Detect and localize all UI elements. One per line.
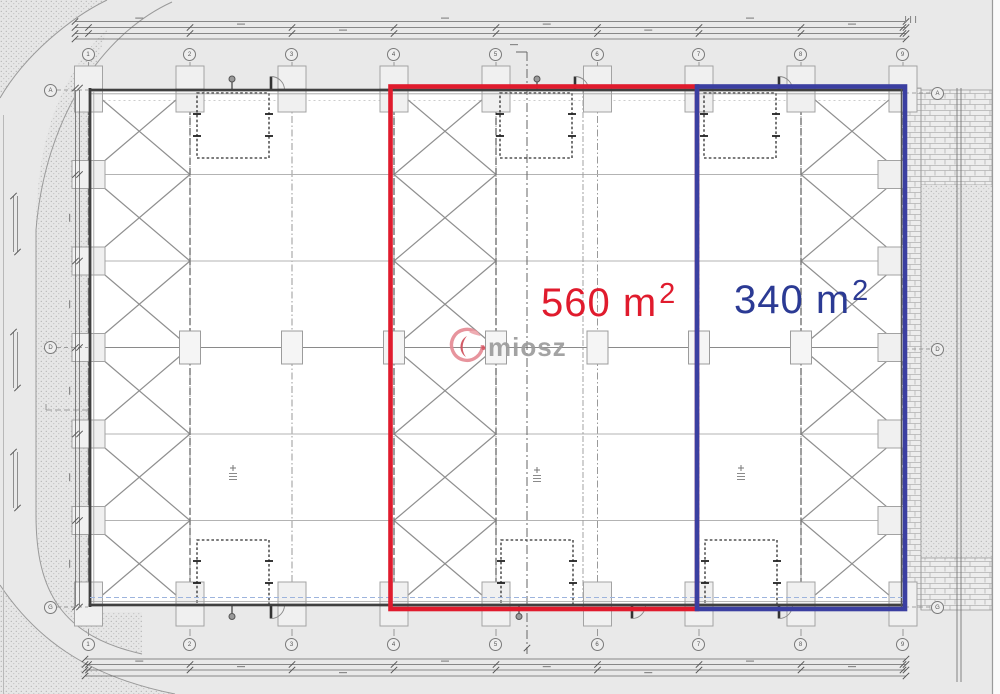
grid-marker-top-3: 3	[285, 48, 298, 61]
grid-marker-left-D: D	[44, 341, 57, 354]
grid-marker-bottom-2: 2	[183, 638, 196, 651]
grid-marker-bottom-7: 7	[692, 638, 705, 651]
grid-marker-top-2: 2	[183, 48, 196, 61]
grid-marker-left-G: G	[44, 601, 57, 614]
red-area-value: 560 m	[541, 281, 657, 325]
grid-marker-left-A: A	[44, 84, 57, 97]
red-area-sup: 2	[659, 278, 676, 310]
grid-marker-bottom-1: 1	[82, 638, 95, 651]
grid-marker-bottom-8: 8	[794, 638, 807, 651]
grid-marker-bottom-9: 9	[896, 638, 909, 651]
blue-area-value: 340 m	[734, 278, 850, 322]
floor-plan-viewport: 560 m2 340 m2 miosz 123456789123456789AD…	[0, 0, 1000, 694]
grid-marker-bottom-4: 4	[387, 638, 400, 651]
grid-marker-top-1: 1	[82, 48, 95, 61]
grid-marker-bottom-5: 5	[489, 638, 502, 651]
grid-marker-right-A: A	[931, 87, 944, 100]
grid-marker-bottom-3: 3	[285, 638, 298, 651]
grid-marker-top-6: 6	[591, 48, 604, 61]
red-area-label: 560 m2	[541, 281, 676, 326]
grid-marker-top-8: 8	[794, 48, 807, 61]
grid-marker-top-5: 5	[489, 48, 502, 61]
grid-marker-top-9: 9	[896, 48, 909, 61]
grid-marker-right-G: G	[931, 601, 944, 614]
floor-plan-canvas	[0, 0, 1000, 694]
grid-marker-right-D: D	[931, 343, 944, 356]
grid-marker-top-7: 7	[692, 48, 705, 61]
blue-area-sup: 2	[852, 275, 869, 307]
grid-marker-top-4: 4	[387, 48, 400, 61]
blue-area-label: 340 m2	[734, 278, 869, 323]
grid-marker-bottom-6: 6	[591, 638, 604, 651]
